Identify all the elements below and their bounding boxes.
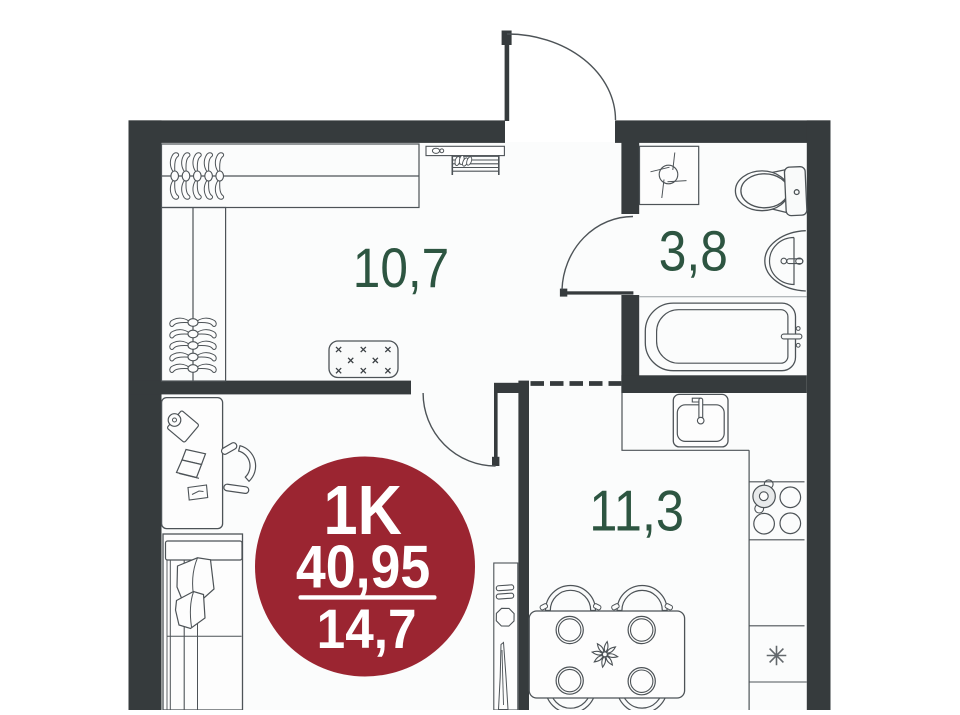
svg-text:14,7: 14,7	[317, 598, 417, 661]
svg-text:40,95: 40,95	[296, 534, 430, 602]
svg-text:11,3: 11,3	[589, 480, 684, 544]
svg-text:10,7: 10,7	[353, 237, 449, 299]
svg-text:3,8: 3,8	[659, 220, 728, 283]
